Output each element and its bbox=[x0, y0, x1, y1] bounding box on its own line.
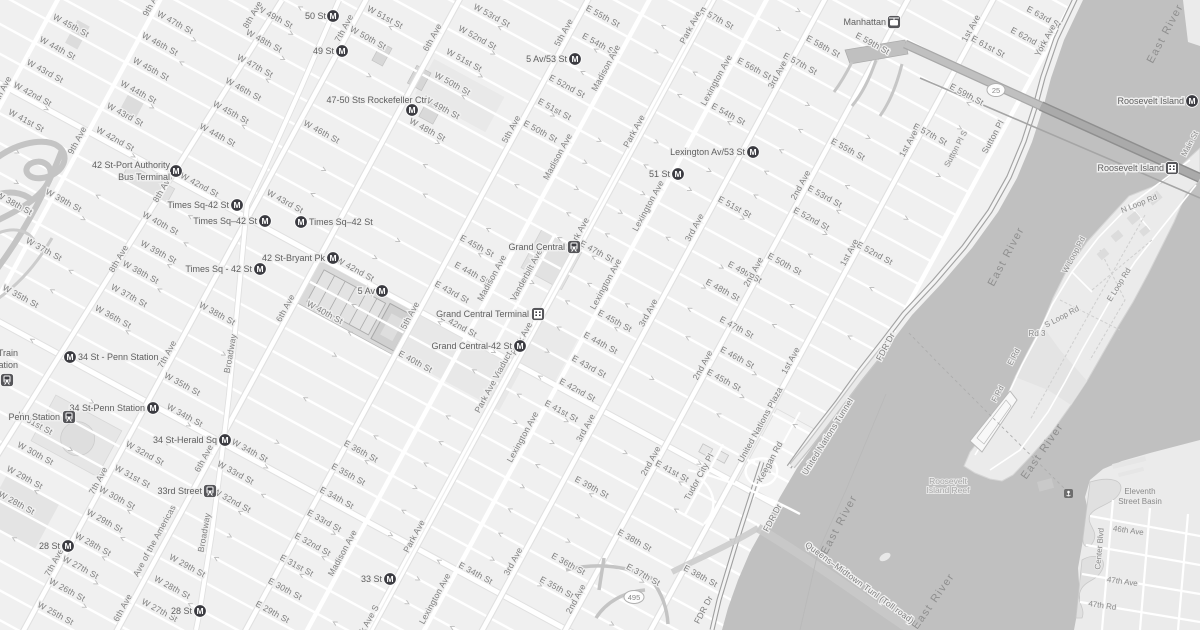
svg-text:Bus Terminal: Bus Terminal bbox=[118, 172, 170, 182]
svg-text:M: M bbox=[408, 105, 415, 115]
svg-text:33rd Street: 33rd Street bbox=[157, 486, 202, 496]
svg-text:Roosevelt Island: Roosevelt Island bbox=[1097, 163, 1164, 173]
svg-text:M: M bbox=[221, 435, 228, 445]
svg-text:34 St-Herald Sq: 34 St-Herald Sq bbox=[153, 435, 217, 445]
svg-text:Grand Central Terminal: Grand Central Terminal bbox=[436, 309, 529, 319]
svg-text:Grand Central-42 St: Grand Central-42 St bbox=[431, 341, 512, 351]
svg-text:33 St: 33 St bbox=[361, 574, 383, 584]
svg-text:51 St: 51 St bbox=[649, 169, 671, 179]
svg-text:25: 25 bbox=[992, 86, 1000, 95]
svg-text:5 Av/53 St: 5 Av/53 St bbox=[526, 54, 567, 64]
svg-text:M: M bbox=[172, 166, 179, 176]
svg-text:M: M bbox=[749, 147, 756, 157]
svg-text:28 St: 28 St bbox=[39, 541, 61, 551]
svg-text:Times Sq - 42 St: Times Sq - 42 St bbox=[185, 264, 252, 274]
svg-text:Train: Train bbox=[0, 348, 18, 358]
svg-text:M: M bbox=[1188, 96, 1195, 106]
svg-text:34 St - Penn Station: 34 St - Penn Station bbox=[78, 352, 159, 362]
svg-text:ation: ation bbox=[0, 360, 18, 370]
svg-text:Street Basin: Street Basin bbox=[1118, 497, 1162, 506]
svg-text:M: M bbox=[338, 46, 345, 56]
svg-text:M: M bbox=[378, 286, 385, 296]
svg-text:M: M bbox=[64, 541, 71, 551]
svg-text:M: M bbox=[571, 54, 578, 64]
svg-text:M: M bbox=[297, 217, 304, 227]
svg-text:M: M bbox=[516, 341, 523, 351]
svg-text:M: M bbox=[233, 200, 240, 210]
svg-text:42 St-Port Authority: 42 St-Port Authority bbox=[92, 160, 171, 170]
svg-text:M: M bbox=[329, 253, 336, 263]
svg-text:Eleventh: Eleventh bbox=[1124, 487, 1155, 496]
svg-text:Times Sq–42 St: Times Sq–42 St bbox=[193, 216, 257, 226]
svg-text:Roosevelt Island: Roosevelt Island bbox=[1117, 96, 1184, 106]
svg-text:M: M bbox=[674, 169, 681, 179]
svg-text:M: M bbox=[256, 264, 263, 274]
svg-text:Penn Station: Penn Station bbox=[8, 412, 60, 422]
svg-text:Manhattan: Manhattan bbox=[843, 17, 886, 27]
svg-text:M: M bbox=[261, 216, 268, 226]
svg-text:50 St: 50 St bbox=[305, 11, 327, 21]
svg-text:49 St: 49 St bbox=[313, 46, 335, 56]
svg-text:M: M bbox=[149, 403, 156, 413]
svg-text:Grand Central: Grand Central bbox=[508, 242, 565, 252]
svg-text:42 St-Bryant Pk: 42 St-Bryant Pk bbox=[262, 253, 326, 263]
svg-text:Rd 3: Rd 3 bbox=[1029, 329, 1046, 338]
svg-text:495: 495 bbox=[628, 593, 641, 602]
svg-text:Lexington Av/53 St: Lexington Av/53 St bbox=[670, 147, 745, 157]
svg-text:M: M bbox=[196, 606, 203, 616]
svg-text:28 St: 28 St bbox=[171, 606, 193, 616]
svg-text:M: M bbox=[386, 574, 393, 584]
svg-text:34 St-Penn Station: 34 St-Penn Station bbox=[69, 403, 145, 413]
svg-text:Times Sq-42 St: Times Sq-42 St bbox=[167, 200, 229, 210]
svg-text:Island Reef: Island Reef bbox=[927, 485, 971, 495]
svg-text:Times Sq–42 St: Times Sq–42 St bbox=[309, 217, 373, 227]
svg-text:M: M bbox=[329, 11, 336, 21]
svg-text:5 Av: 5 Av bbox=[358, 286, 376, 296]
svg-text:M: M bbox=[66, 352, 73, 362]
